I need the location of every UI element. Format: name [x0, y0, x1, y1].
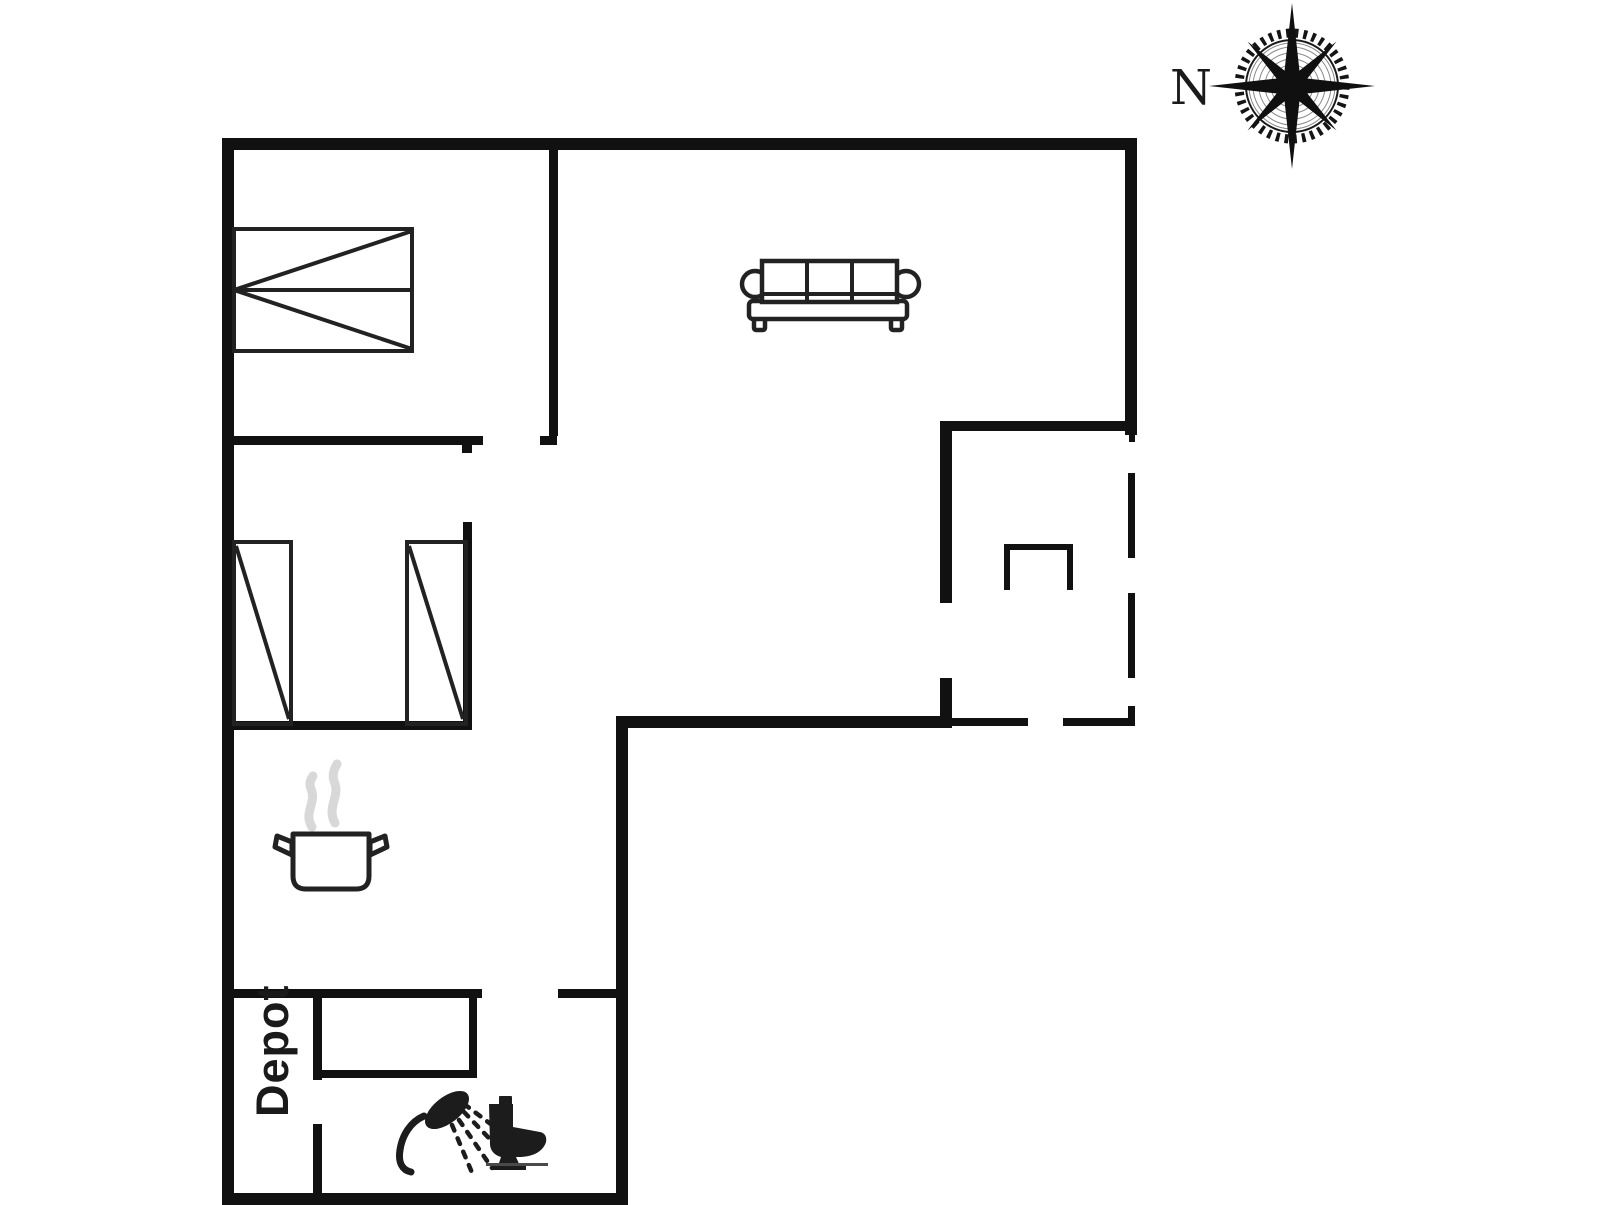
- entrance-step: [1007, 547, 1070, 590]
- compass-north-label: N: [1170, 60, 1212, 116]
- double-bed-icon: [234, 229, 412, 351]
- steam: [309, 776, 313, 827]
- terrace-dashed-outline: [952, 473, 1135, 726]
- exterior-walls: [222, 138, 1137, 1205]
- single-bed-icon: [407, 542, 466, 724]
- steam: [332, 764, 337, 823]
- cooking-pot-icon: [275, 764, 387, 889]
- single-bed-icon: [234, 542, 291, 724]
- compass-rose-icon: [1209, 3, 1375, 169]
- floor-plan: Depot N: [0, 0, 1606, 1205]
- depot-label: Depot: [247, 985, 298, 1118]
- toilet-icon: [486, 1096, 548, 1170]
- sofa-icon: [742, 261, 919, 330]
